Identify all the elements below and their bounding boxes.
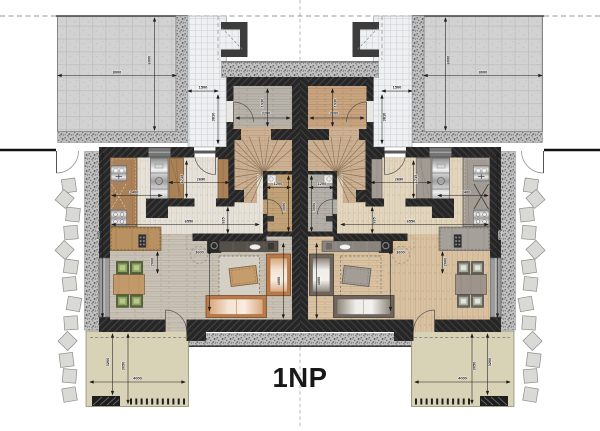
svg-text:3810: 3810 [382,113,387,122]
svg-text:935: 935 [372,216,377,223]
svg-text:8150: 8150 [497,231,502,240]
svg-text:1930: 1930 [260,99,265,108]
svg-text:6000: 6000 [147,56,152,65]
svg-text:8000: 8000 [113,70,122,75]
svg-text:2690: 2690 [395,177,404,182]
svg-text:1930: 1930 [332,99,337,108]
svg-text:3050: 3050 [281,203,286,212]
svg-text:3200: 3200 [105,358,110,367]
svg-text:4000: 4000 [133,376,142,381]
svg-text:3400: 3400 [462,190,471,195]
svg-text:6550: 6550 [407,219,416,224]
svg-text:2000: 2000 [150,258,155,267]
svg-text:935: 935 [221,216,226,223]
svg-text:1715: 1715 [413,174,418,183]
svg-text:3400: 3400 [130,190,139,195]
svg-text:1500: 1500 [199,85,208,90]
svg-text:1500: 1500 [393,85,402,90]
svg-text:3600: 3600 [195,250,204,255]
svg-text:4000: 4000 [458,376,467,381]
svg-text:1715: 1715 [179,174,184,183]
svg-text:1200: 1200 [274,181,283,186]
svg-text:8000: 8000 [479,70,488,75]
svg-text:3050: 3050 [311,203,316,212]
svg-text:3050: 3050 [120,362,125,371]
svg-text:6550: 6550 [185,219,194,224]
svg-text:3200: 3200 [330,111,339,116]
svg-text:1NP: 1NP [273,362,328,393]
svg-text:3600: 3600 [396,250,405,255]
svg-text:2000: 2000 [443,258,448,267]
svg-text:3200: 3200 [262,111,271,116]
svg-text:8150: 8150 [95,231,100,240]
svg-text:2690: 2690 [197,177,206,182]
svg-text:6000: 6000 [446,56,451,65]
svg-text:4000: 4000 [316,277,321,286]
svg-text:3810: 3810 [211,113,216,122]
svg-text:1200: 1200 [318,181,327,186]
svg-text:3200: 3200 [487,358,492,367]
svg-text:4000: 4000 [276,277,281,286]
svg-text:3050: 3050 [472,362,477,371]
